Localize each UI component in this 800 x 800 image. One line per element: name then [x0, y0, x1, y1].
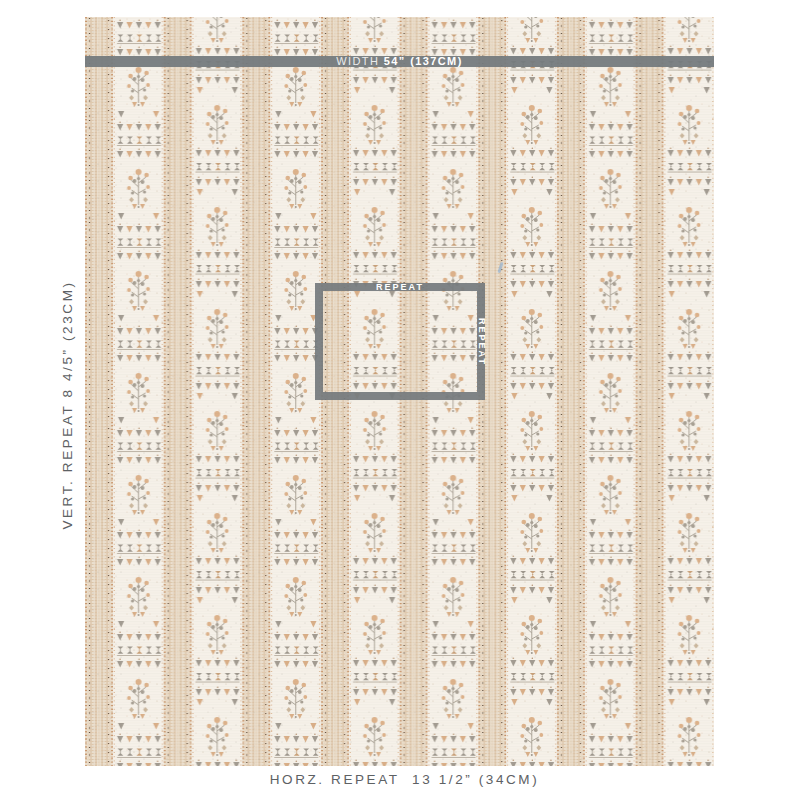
repeat-box-side-label: REPEAT [477, 318, 486, 366]
fabric-measurement-diagram: WIDTH 54” (137CM) REPEAT REPEAT VERT. RE… [0, 0, 800, 800]
fabric-swatch: WIDTH 54” (137CM) REPEAT REPEAT [85, 17, 714, 766]
width-bar-label: WIDTH 54” (137CM) [336, 56, 463, 67]
width-measure-bar: WIDTH 54” (137CM) [85, 56, 714, 67]
repeat-outline-box: REPEAT REPEAT [315, 283, 485, 400]
vertical-repeat-label: VERT. REPEAT 8 4/5” (23CM) [60, 280, 75, 529]
horizontal-repeat-label: HORZ. REPEAT 13 1/2” (34CM) [85, 772, 714, 787]
width-bar-value: 54” (137CM) [384, 55, 463, 67]
repeat-box-top-label: REPEAT [376, 283, 424, 292]
width-bar-prefix: WIDTH [336, 55, 384, 67]
